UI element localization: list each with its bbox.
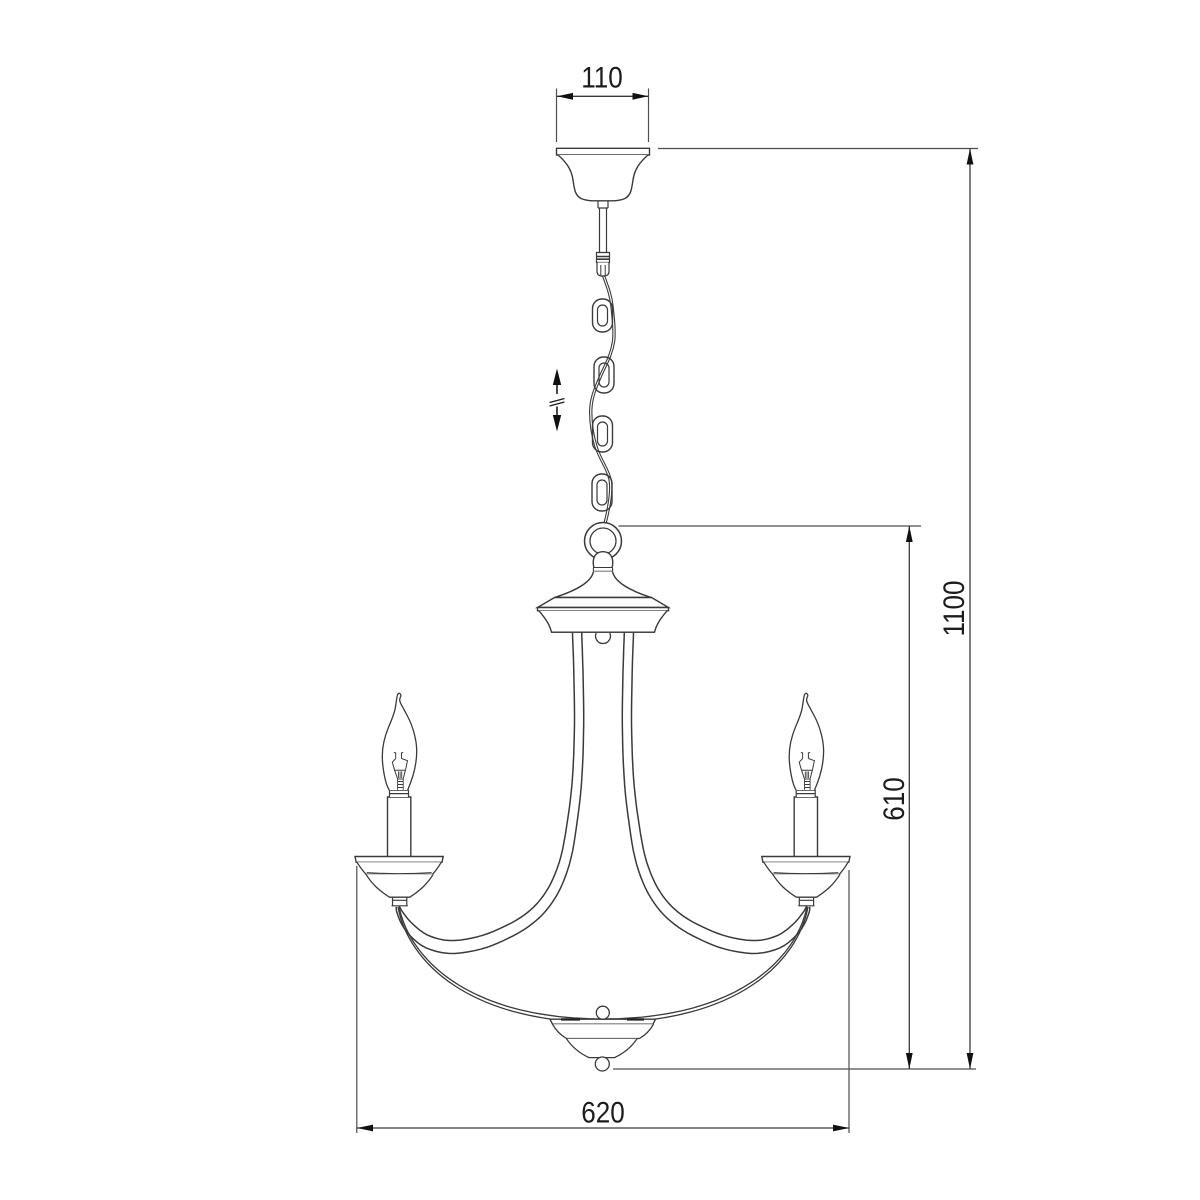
svg-text:610: 610 [877, 777, 910, 821]
svg-text:1100: 1100 [937, 580, 970, 636]
svg-text:110: 110 [581, 61, 623, 94]
svg-text:620: 620 [581, 1096, 625, 1129]
